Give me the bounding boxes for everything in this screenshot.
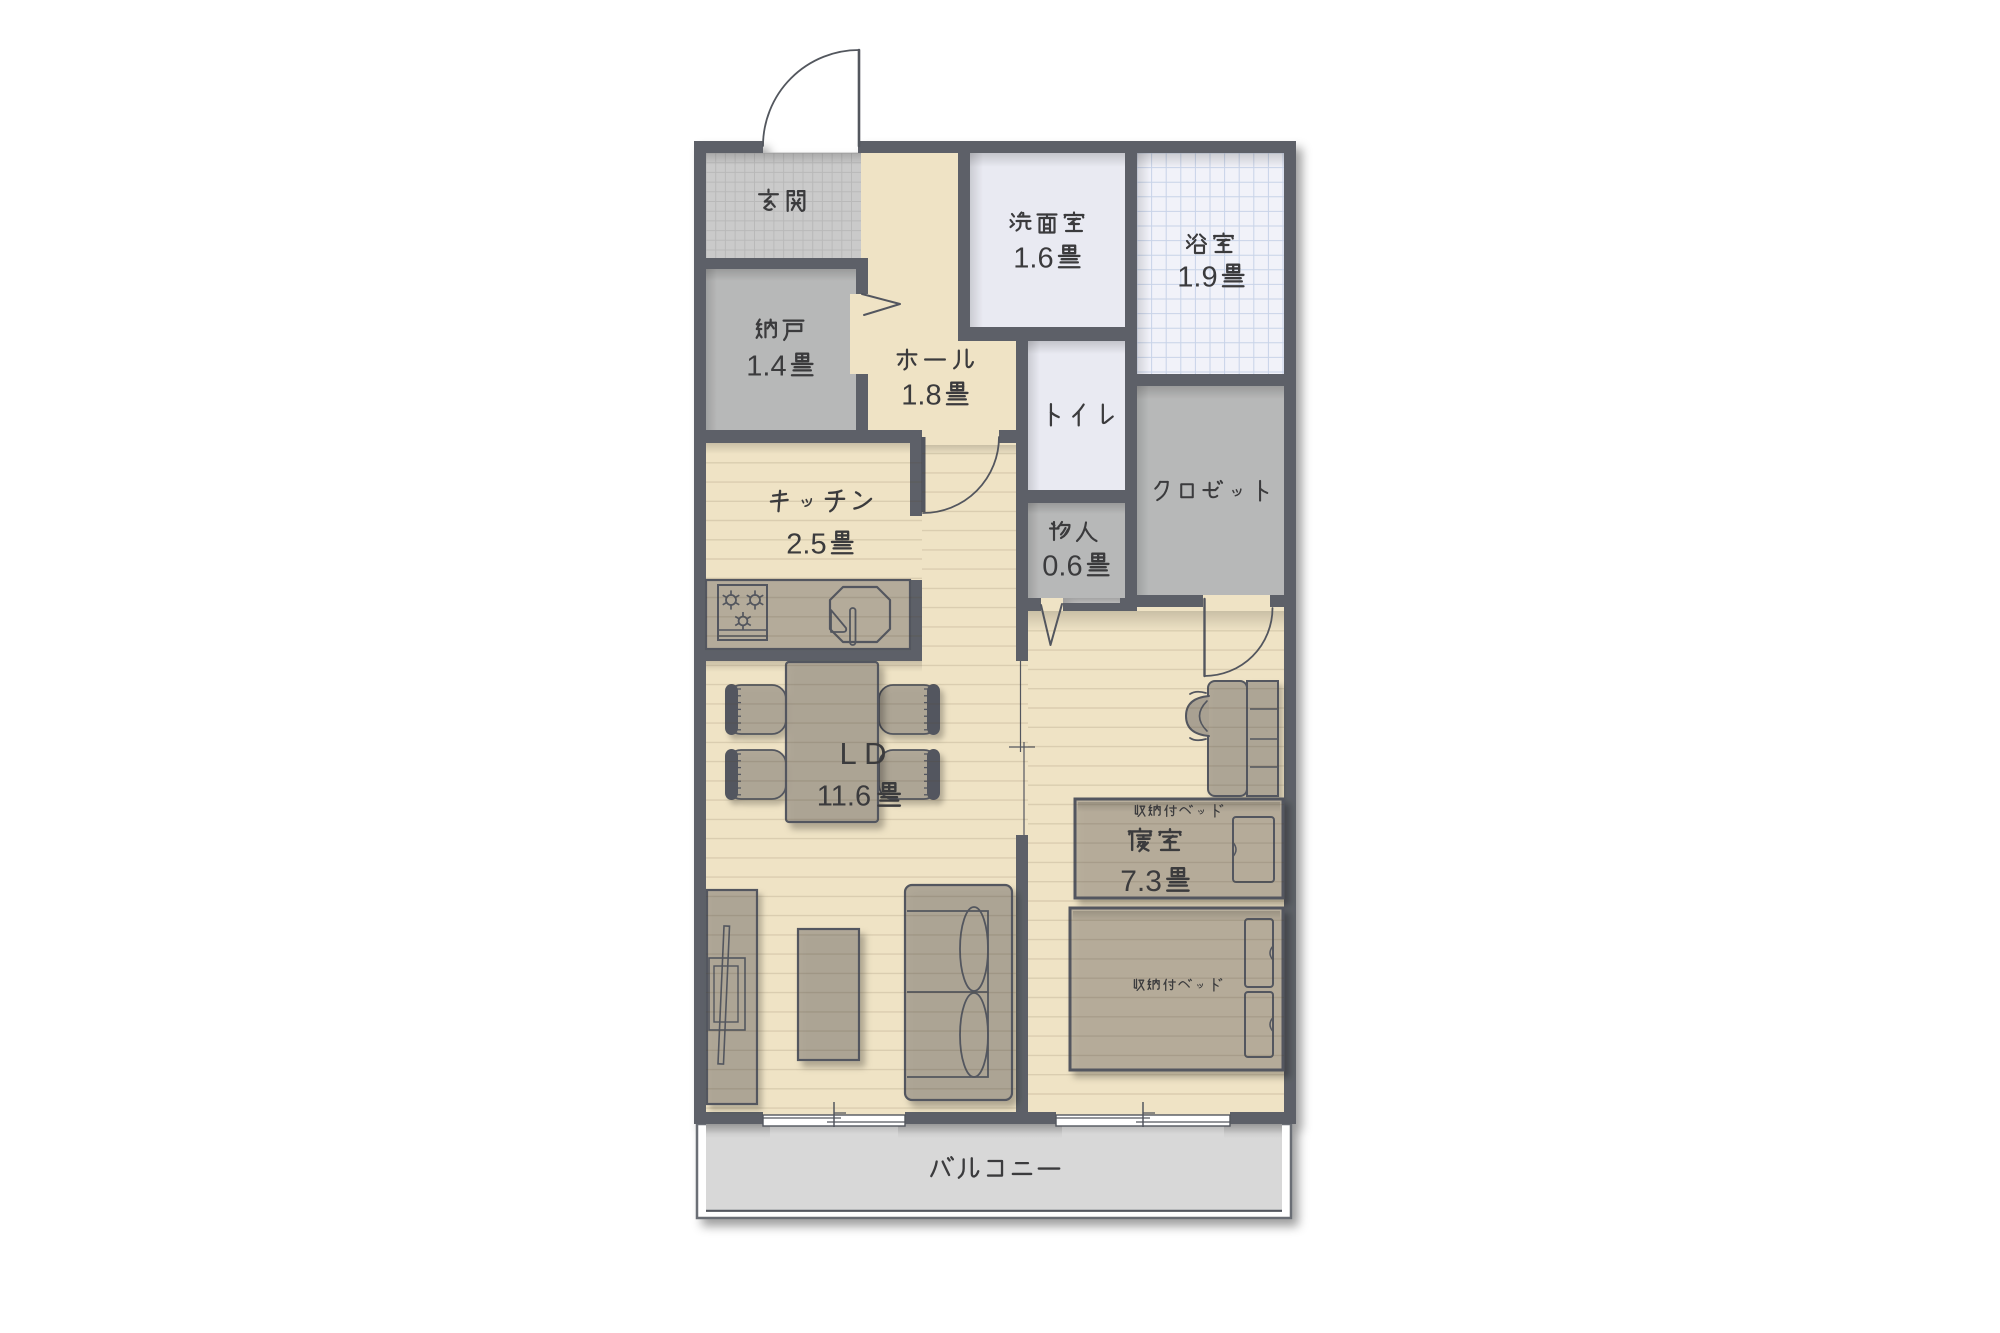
svg-text:1.6: 1.6 — [1013, 243, 1053, 275]
svg-text:1.4: 1.4 — [746, 351, 786, 383]
svg-text:2.5: 2.5 — [786, 529, 826, 561]
svg-text:0.6: 0.6 — [1042, 551, 1082, 583]
svg-text:7.3: 7.3 — [1120, 865, 1162, 898]
svg-text:1.9: 1.9 — [1177, 262, 1217, 294]
svg-text:1.8: 1.8 — [901, 380, 941, 412]
svg-text:11.6: 11.6 — [817, 781, 871, 813]
svg-text:L D: L D — [839, 736, 886, 771]
